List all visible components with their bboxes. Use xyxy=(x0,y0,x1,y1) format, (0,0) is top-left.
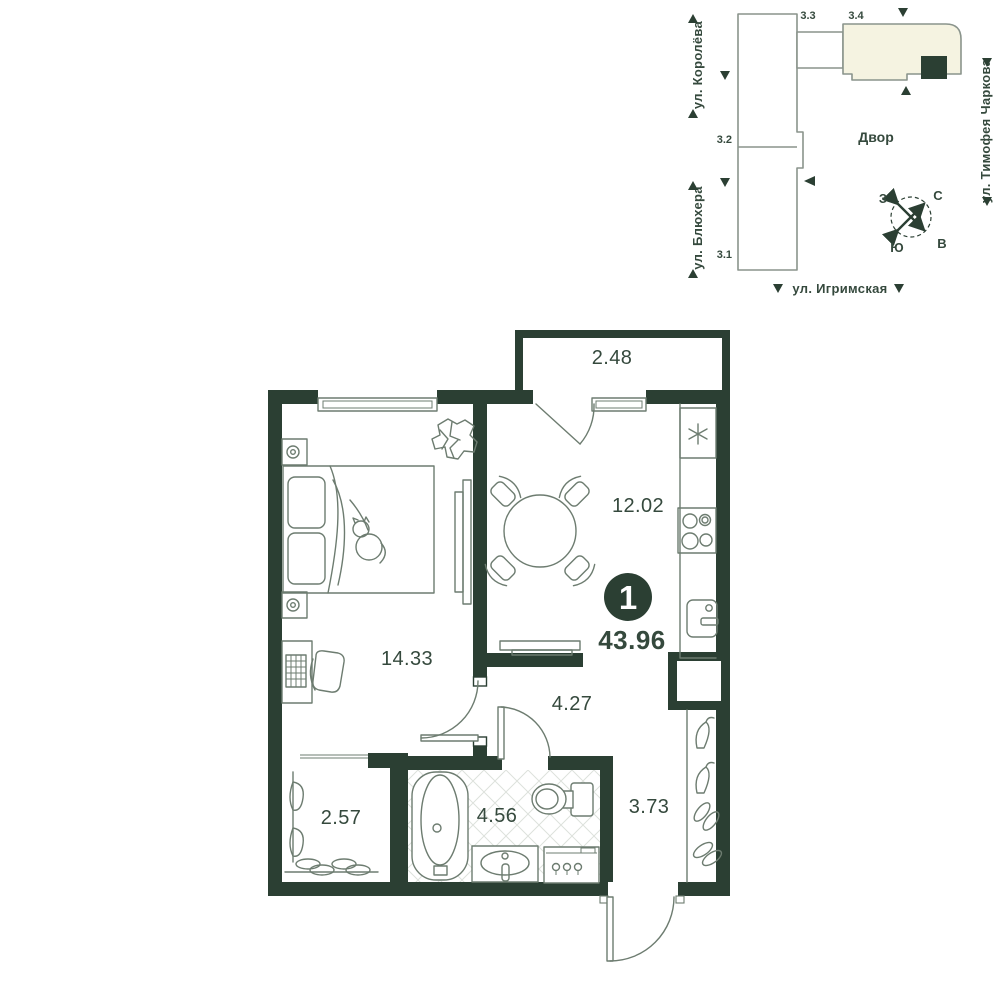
plant-icon xyxy=(432,419,477,459)
desk xyxy=(282,641,312,703)
compass-north: С xyxy=(933,188,943,203)
desk-chair xyxy=(310,651,344,692)
total-area: 43.96 xyxy=(598,625,666,655)
compass: С З Ю В xyxy=(879,188,947,255)
fridge-icon xyxy=(680,408,716,458)
hallway-hangers xyxy=(696,718,714,794)
wardrobe-hangers xyxy=(290,782,303,856)
room-label-bathroom: 4.56 xyxy=(477,805,518,827)
building-label-3-1: 3.1 xyxy=(717,249,732,261)
shaft-inner xyxy=(677,661,721,701)
room-label-wardrobe: 2.57 xyxy=(321,807,362,829)
rooms-badge: 1 xyxy=(604,573,652,621)
room-label-hall: 4.27 xyxy=(552,693,593,715)
bathroom-door xyxy=(498,707,550,759)
cat xyxy=(353,517,385,563)
compass-east: В xyxy=(937,236,946,251)
nightstand-bottom xyxy=(282,592,307,618)
bedroom-door xyxy=(421,681,478,741)
building-label-3-3: 3.3 xyxy=(800,10,815,22)
floorplan-canvas: 3.3 3.4 3.2 3.1 Двор ул. Королёва ул. Бл… xyxy=(0,0,1000,1000)
street-label-blyukhera: ул. Блюхера xyxy=(690,186,705,270)
room-label-bedroom: 14.33 xyxy=(381,648,433,670)
sideboard xyxy=(500,641,580,655)
entrance-door xyxy=(607,897,674,961)
bed xyxy=(283,466,434,593)
floorplan-page: 3.3 3.4 3.2 3.1 Двор ул. Королёва ул. Бл… xyxy=(0,0,1000,1000)
dining-chairs xyxy=(482,473,598,589)
street-label-koroleva: ул. Королёва xyxy=(690,20,705,109)
floor-plan: 2.48 12.02 14.33 4.27 2.57 4.56 3.73 1 4… xyxy=(268,330,730,961)
nightstand-top xyxy=(282,439,307,465)
stove xyxy=(678,508,716,553)
room-label-kitchen: 12.02 xyxy=(612,495,664,517)
site-plan: 3.3 3.4 3.2 3.1 Двор ул. Королёва ул. Бл… xyxy=(688,8,993,296)
bathtub xyxy=(412,772,468,880)
bedroom-window xyxy=(318,398,437,411)
kitchen-sink xyxy=(687,600,718,637)
bathroom-sink xyxy=(472,846,538,882)
compass-west: З xyxy=(879,191,887,206)
street-label-timofeya-charkova: ул. Тимофея Чаркова xyxy=(978,58,993,203)
dining-table xyxy=(504,495,576,567)
washing-machine xyxy=(544,847,599,883)
building-label-3-4: 3.4 xyxy=(848,10,864,22)
room-label-balcony: 2.48 xyxy=(592,347,633,369)
building-3-3 xyxy=(797,32,843,68)
kitchen-window xyxy=(592,398,646,411)
building-3-1-3-2 xyxy=(738,14,803,270)
tv-dresser xyxy=(455,480,471,604)
street-label-igrimskaya: ул. Игримская xyxy=(792,281,887,296)
rooms-badge-number: 1 xyxy=(619,579,637,616)
apartment-location-marker xyxy=(921,56,947,79)
balcony-door xyxy=(536,404,594,444)
compass-south: Ю xyxy=(890,240,903,255)
courtyard-label: Двор xyxy=(858,129,894,145)
room-label-hallway: 3.73 xyxy=(629,796,670,818)
building-label-3-2: 3.2 xyxy=(717,134,732,146)
